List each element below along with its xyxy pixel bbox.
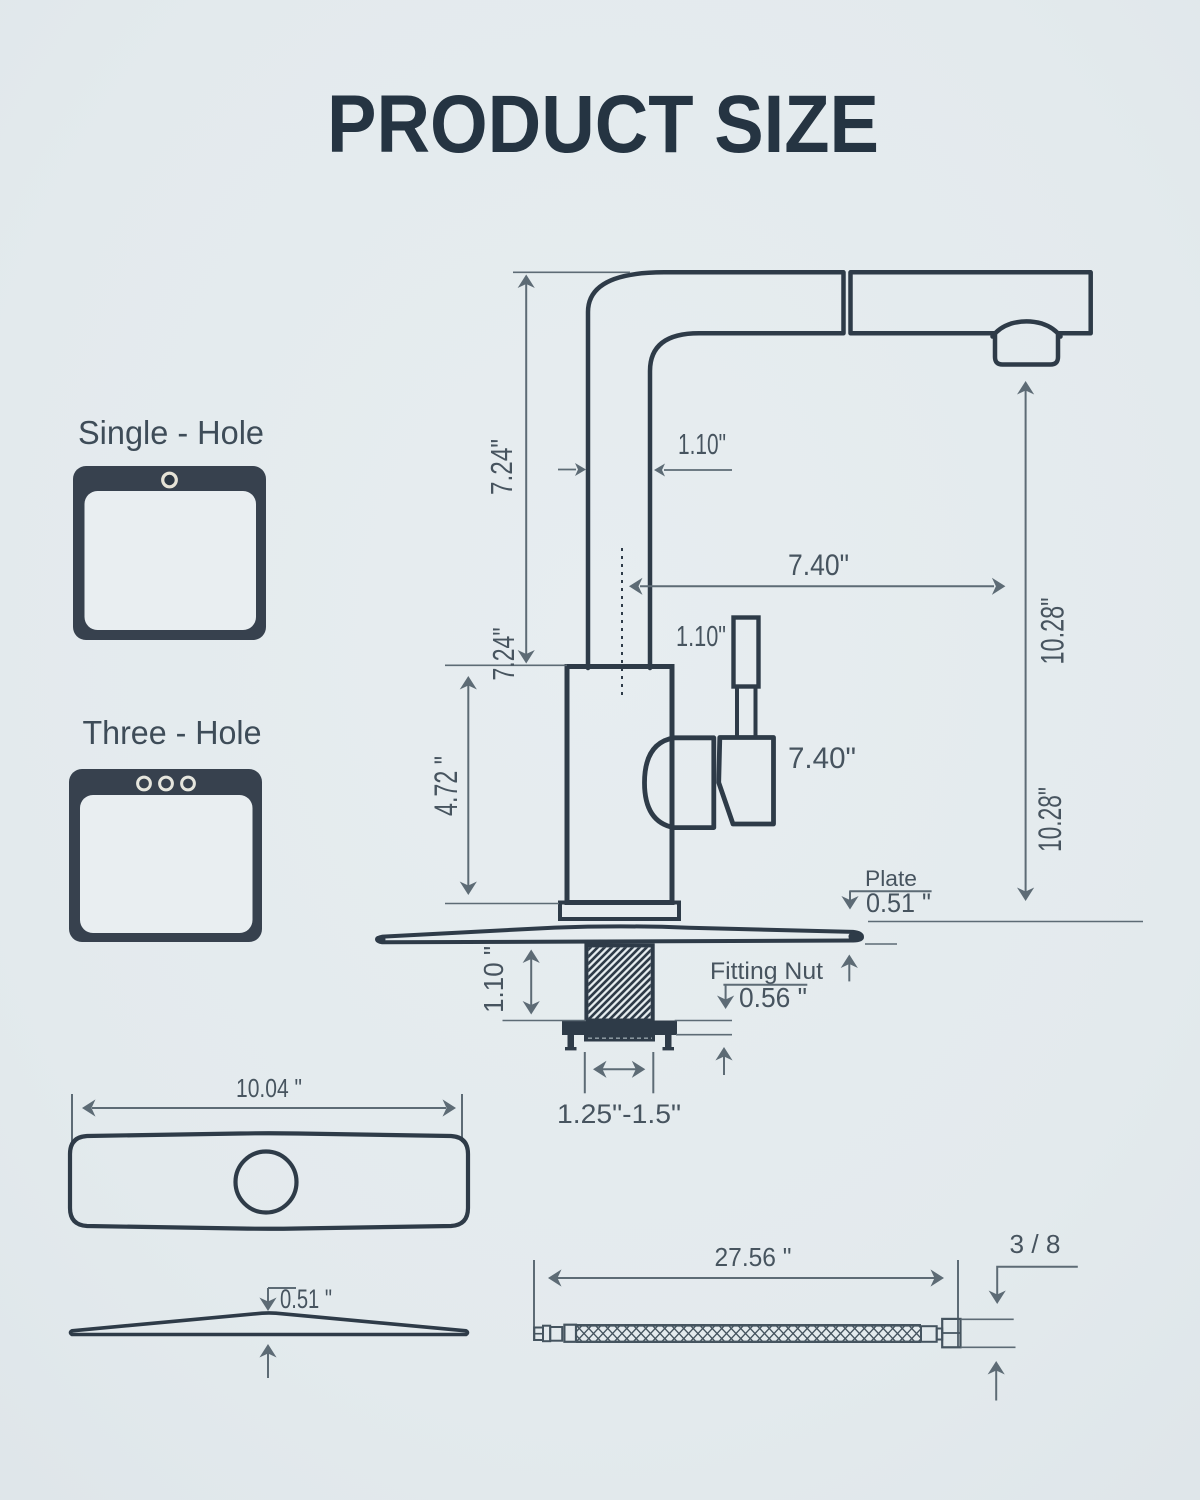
- svg-text:PRODUCT SIZE: PRODUCT SIZE: [327, 79, 879, 170]
- svg-text:10.28": 10.28": [1032, 787, 1068, 852]
- svg-text:1.25"-1.5": 1.25"-1.5": [557, 1099, 681, 1129]
- svg-text:7.40": 7.40": [788, 549, 849, 582]
- svg-text:10.04 ": 10.04 ": [236, 1073, 302, 1103]
- svg-text:Fitting Nut: Fitting Nut: [710, 958, 823, 985]
- svg-text:1.10": 1.10": [676, 621, 726, 653]
- svg-text:0.51 ": 0.51 ": [866, 888, 931, 918]
- svg-text:Single - Hole: Single - Hole: [78, 414, 264, 451]
- svg-text:7.24": 7.24": [484, 439, 519, 495]
- svg-text:Three - Hole: Three - Hole: [83, 714, 262, 751]
- svg-text:7.40": 7.40": [788, 742, 856, 775]
- svg-text:1.10 ": 1.10 ": [478, 946, 509, 1013]
- svg-text:0.56 ": 0.56 ": [739, 982, 807, 1013]
- svg-text:0.51 ": 0.51 ": [280, 1284, 332, 1314]
- svg-text:10.28": 10.28": [1035, 598, 1071, 665]
- svg-text:4.72 ": 4.72 ": [428, 756, 464, 816]
- svg-text:3 / 8: 3 / 8: [1010, 1229, 1061, 1259]
- svg-text:7.24": 7.24": [486, 628, 521, 681]
- svg-text:1.10": 1.10": [678, 429, 726, 461]
- svg-text:27.56 ": 27.56 ": [715, 1242, 792, 1272]
